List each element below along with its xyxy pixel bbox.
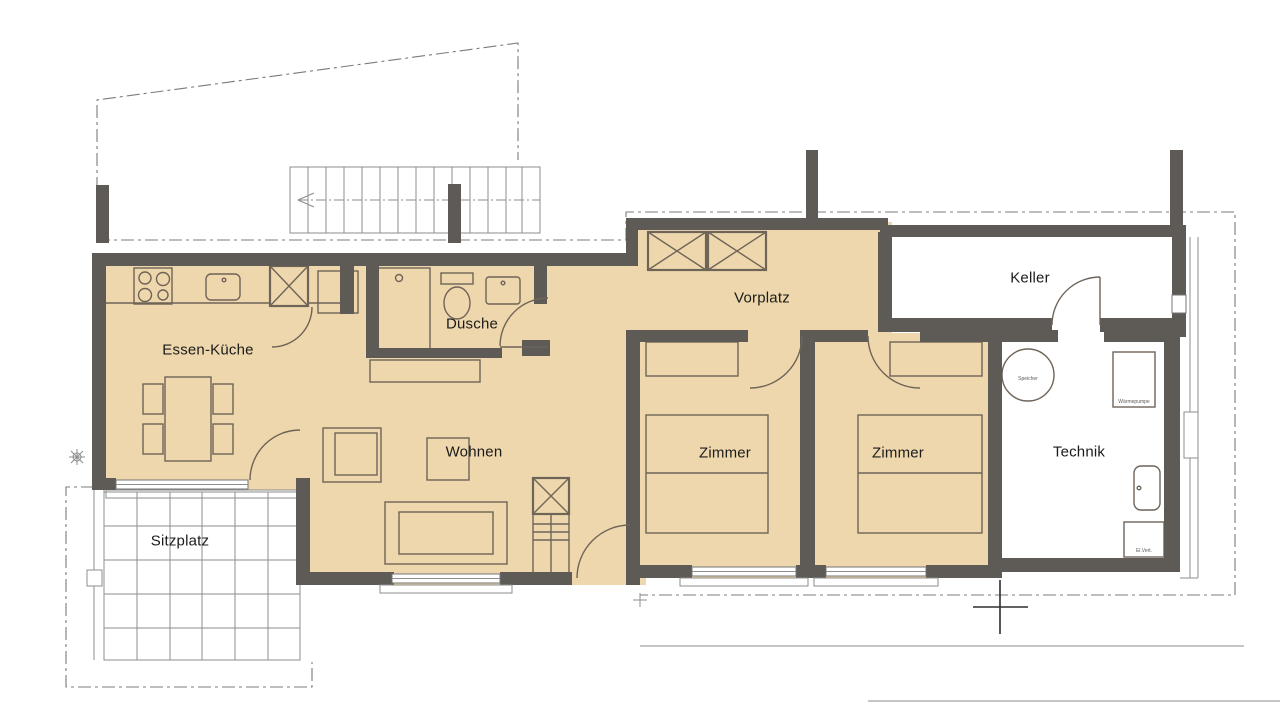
survey-cross	[973, 580, 1028, 634]
pillar	[96, 185, 109, 243]
pillar	[1170, 150, 1183, 225]
kitchen-window-sill	[106, 490, 304, 498]
wardrobe-icon	[648, 232, 706, 270]
room-label-sitzplatz: Sitzplatz	[151, 533, 210, 550]
window	[380, 574, 512, 593]
kitchen-tall-cabinet	[270, 266, 308, 306]
room-label-dusche: Dusche	[446, 316, 498, 333]
benchmark-star	[69, 449, 85, 465]
site-lines	[640, 646, 1280, 701]
floor-plan-drawing	[0, 0, 1280, 720]
terrace-grid	[87, 490, 304, 660]
window	[116, 480, 248, 489]
room-label-technik: Technik	[1053, 444, 1105, 461]
window	[814, 567, 938, 586]
room-label-wohnen: Wohnen	[446, 444, 503, 461]
pillar	[448, 184, 461, 243]
staircase	[290, 167, 540, 233]
wardrobe-icon	[708, 232, 766, 270]
panel-label: El.Vert.	[1136, 548, 1152, 554]
room-label-essen-kueche: Essen-Küche	[162, 342, 253, 359]
facade-window-box	[1184, 412, 1198, 458]
tank-label: Speicher	[1018, 376, 1038, 382]
window	[680, 567, 808, 586]
pillar	[806, 150, 818, 218]
hall-wardrobes	[648, 232, 766, 270]
room-label-keller: Keller	[1010, 270, 1050, 287]
terrace-post	[87, 570, 102, 586]
heat-pump-label: Wärmepumpe	[1118, 399, 1149, 405]
room-label-zimmer-1: Zimmer	[699, 445, 751, 462]
cellar-side-window	[1172, 295, 1186, 313]
room-label-vorplatz: Vorplatz	[734, 290, 790, 307]
floor-plan: Essen-Küche Dusche Wohnen Vorplatz Zimme…	[0, 0, 1280, 720]
room-label-zimmer-2: Zimmer	[872, 445, 924, 462]
